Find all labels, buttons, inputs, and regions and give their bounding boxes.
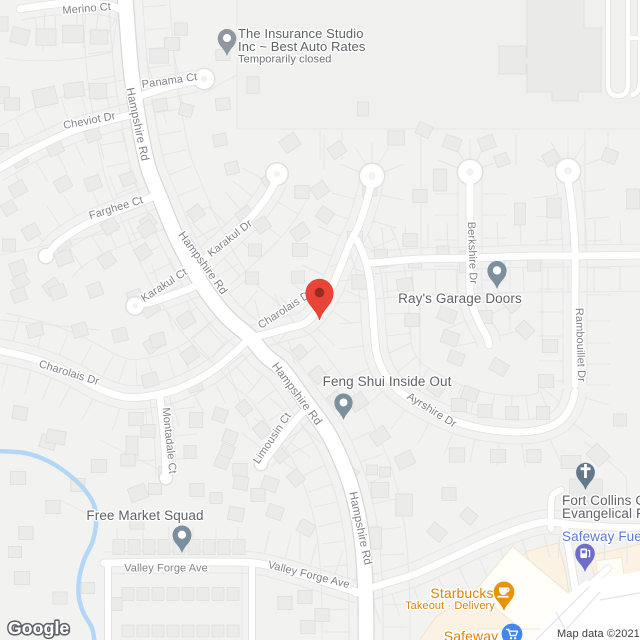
svg-text:Map data ©2021: Map data ©2021 xyxy=(557,628,640,640)
svg-text:Ray's Garage Doors: Ray's Garage Doors xyxy=(398,291,522,306)
svg-text:Safeway: Safeway xyxy=(444,628,498,640)
svg-text:Temporarily closed: Temporarily closed xyxy=(238,54,332,66)
svg-text:Inc ~ Best Auto Rates: Inc ~ Best Auto Rates xyxy=(238,39,366,54)
svg-text:Berkshire Dr: Berkshire Dr xyxy=(465,222,479,285)
svg-text:Takeout · Delivery: Takeout · Delivery xyxy=(405,600,495,612)
svg-text:Google: Google xyxy=(8,618,70,638)
svg-text:Free Market Squad: Free Market Squad xyxy=(86,508,203,523)
svg-text:Evangelical Fre: Evangelical Fre xyxy=(562,506,640,521)
svg-text:Feng Shui Inside Out: Feng Shui Inside Out xyxy=(323,374,452,389)
svg-text:Starbucks: Starbucks xyxy=(430,585,493,601)
svg-text:Valley Forge Ave: Valley Forge Ave xyxy=(124,563,208,575)
svg-text:Safeway Fuel: Safeway Fuel xyxy=(562,529,640,544)
